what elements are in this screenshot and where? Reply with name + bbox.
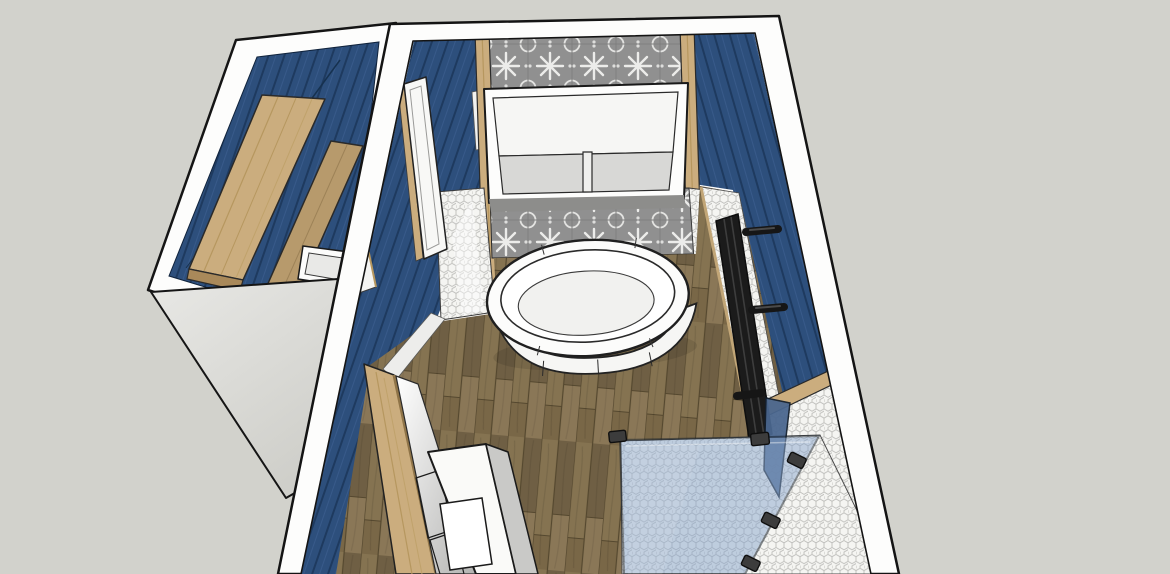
vanity-top-slab — [493, 92, 678, 156]
vanity-shelf-divider — [583, 152, 592, 192]
render-canvas — [0, 0, 1170, 574]
cabinet-sink-outline — [440, 498, 492, 570]
vanity-cabinet — [484, 83, 688, 212]
viewport-3d[interactable] — [0, 0, 1170, 574]
